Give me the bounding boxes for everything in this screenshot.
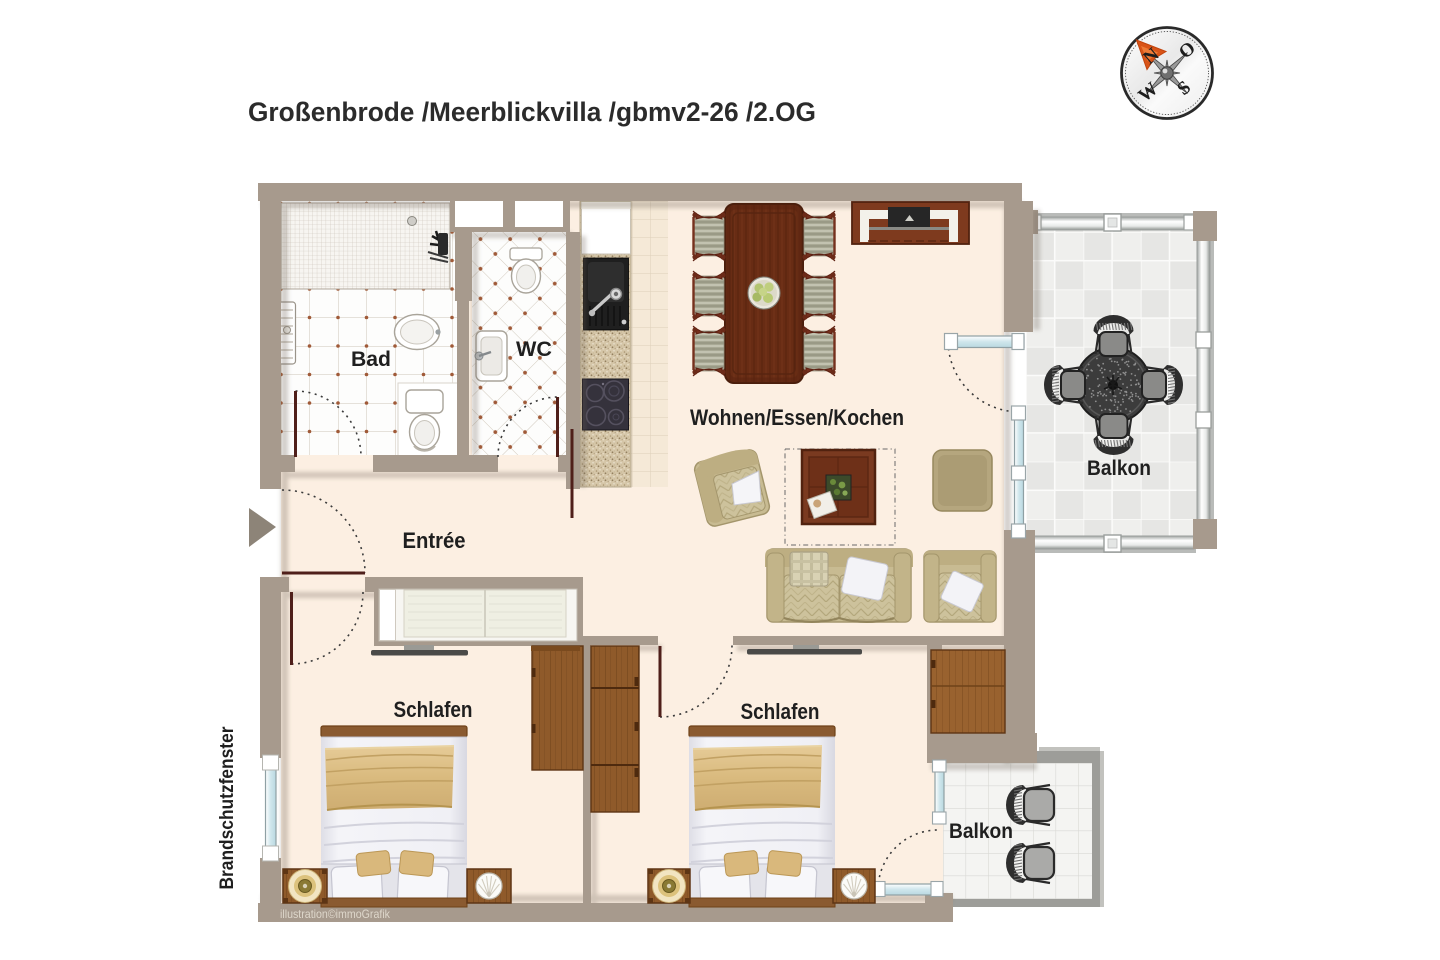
svg-text:Entrée: Entrée bbox=[403, 528, 466, 553]
svg-text:Schlafen: Schlafen bbox=[394, 697, 473, 722]
svg-text:Schlafen: Schlafen bbox=[741, 699, 820, 724]
svg-text:Bad: Bad bbox=[351, 348, 391, 371]
svg-text:illustration©immoGrafik: illustration©immoGrafik bbox=[280, 907, 391, 921]
svg-text:Balkon: Balkon bbox=[949, 820, 1013, 843]
svg-text:WC: WC bbox=[516, 338, 552, 361]
svg-text:Großenbrode /Meerblickvilla /g: Großenbrode /Meerblickvilla /gbmv2-26 /2… bbox=[248, 97, 816, 127]
svg-text:Balkon: Balkon bbox=[1087, 457, 1151, 480]
svg-text:Wohnen/Essen/Kochen: Wohnen/Essen/Kochen bbox=[690, 405, 904, 430]
svg-text:Brandschutzfenster: Brandschutzfenster bbox=[217, 726, 238, 890]
